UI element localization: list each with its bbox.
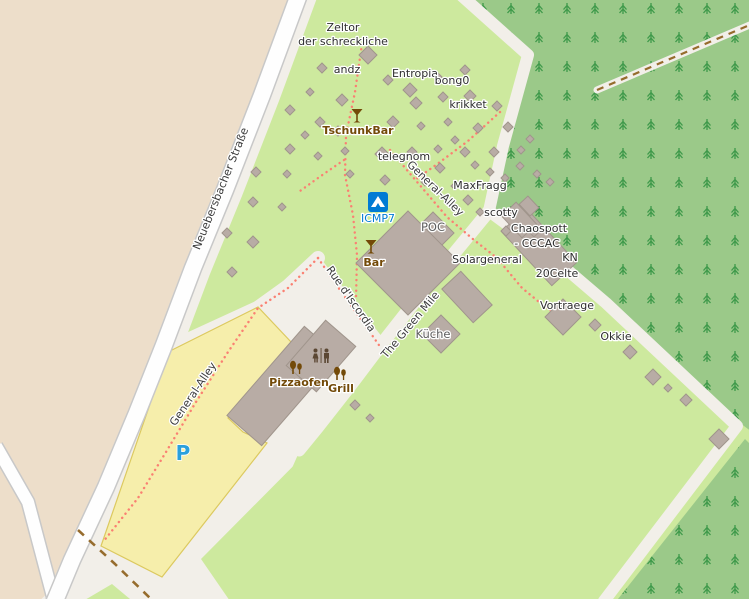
map-label-k-che: Küche	[416, 327, 451, 341]
map-label-solargeneral: Solargeneral	[452, 253, 522, 266]
map-label-zeltor: Zeltor	[327, 21, 360, 34]
map-label-grill: Grill	[328, 382, 354, 395]
campsite-icon-icmp7	[368, 192, 388, 212]
openstreetmap-canvas: Zeltorder schrecklicheandzEntropiabong0k…	[0, 0, 749, 599]
map-label--cccac: - CCCAC	[514, 237, 560, 250]
map-label-andz: andz	[334, 63, 361, 76]
map-label-krikket: krikket	[449, 98, 487, 111]
map-label-chaospott: Chaospott	[511, 222, 568, 235]
map-label-der-schreckliche: der schreckliche	[298, 35, 388, 48]
map-label-kn: KN	[562, 251, 577, 264]
map-label-telegnom: telegnom	[378, 150, 430, 163]
map-label-tschunkbar: TschunkBar	[322, 124, 394, 137]
map-label-bong0: bong0	[435, 74, 470, 87]
map-viewport[interactable]: Zeltorder schrecklicheandzEntropiabong0k…	[0, 0, 749, 599]
map-label-entropia: Entropia	[392, 67, 438, 80]
map-label-vortraege: Vortraege	[540, 299, 594, 312]
map-label-p: P	[176, 441, 191, 465]
map-label-pizzaofen: Pizzaofen	[269, 376, 329, 389]
map-label-okkie: Okkie	[600, 330, 631, 343]
map-label-poc: POC	[421, 220, 445, 234]
map-label-maxfragg: MaxFragg	[453, 179, 507, 192]
map-label-icmp7: ICMP7	[361, 212, 395, 225]
map-label-bar: Bar	[363, 256, 385, 269]
map-label-scotty: scotty	[484, 206, 518, 219]
map-label-20celte: 20Celte	[536, 267, 579, 280]
